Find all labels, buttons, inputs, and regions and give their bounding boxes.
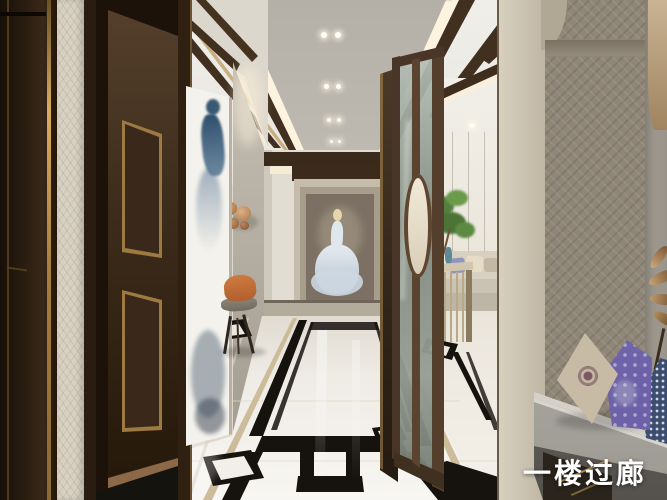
floor-band-to-bench xyxy=(0,0,667,500)
bonsai-foliage xyxy=(455,222,475,238)
pillow-purple-motif xyxy=(614,380,636,406)
screen-center-strip xyxy=(0,0,667,500)
oval-ring-window xyxy=(404,174,432,278)
spotlight xyxy=(337,118,341,122)
fascia-beam-b xyxy=(0,0,667,500)
caption-room-label: 一楼过廊 xyxy=(447,452,647,496)
painting-top-beam xyxy=(0,0,667,500)
wood-wall-gold-strip xyxy=(47,0,51,500)
copper-disc-sconce xyxy=(236,206,251,221)
fascia-cove-glow xyxy=(0,0,667,500)
screen-glass-streak xyxy=(399,120,411,300)
door-gold-inlay-top xyxy=(0,0,667,500)
pillow-beige-medallion xyxy=(578,366,598,386)
dark-wood-wall xyxy=(0,0,57,500)
niche-wall xyxy=(0,0,667,500)
accent-wall-right xyxy=(645,0,667,500)
spotlight xyxy=(321,32,327,38)
pillow-dotted-navy xyxy=(0,0,667,500)
living-wall-panel-seam xyxy=(484,132,485,276)
floor-seam xyxy=(0,0,667,500)
living-ceiling-beam xyxy=(0,0,667,500)
floor-band-front-right xyxy=(0,0,667,500)
ink-figure-flow xyxy=(196,168,222,252)
dried-flower-decor xyxy=(651,308,667,330)
floor-seam xyxy=(0,0,667,500)
fascia-beam-a xyxy=(0,0,667,500)
pillow-floral-beige xyxy=(0,0,667,500)
dark-wood-panel xyxy=(0,0,667,500)
chair-leg xyxy=(242,314,255,354)
dark-wood-panel-gold-edge xyxy=(0,0,667,500)
bench-front-face xyxy=(0,0,667,500)
floor-square-right xyxy=(0,0,667,500)
end-wall-cove-glow xyxy=(0,0,667,500)
floor-flanker-left xyxy=(0,0,667,500)
floor-runner-right xyxy=(0,0,667,500)
greek-key-wallpaper-strip xyxy=(57,0,84,500)
ceiling-beam-corner-right xyxy=(0,0,667,500)
door-gold-inlay-bottom xyxy=(0,0,667,500)
bench-back-rail xyxy=(0,0,667,500)
bench-cushion-highlight xyxy=(0,0,667,500)
end-wall-pilaster-right xyxy=(0,0,667,500)
dried-flower-decor xyxy=(650,293,667,306)
floor-runner-left xyxy=(0,0,667,500)
floor-meander-cross xyxy=(0,0,667,500)
ceiling-beam-right xyxy=(0,0,667,500)
marble-floor xyxy=(0,0,667,500)
living-wall-panel-seam xyxy=(452,132,453,272)
floor-runner-inner-right xyxy=(0,0,667,500)
bonsai-foliage xyxy=(428,196,454,216)
spotlight xyxy=(324,84,329,89)
ceiling-beam-outer-left xyxy=(0,0,667,500)
floor-pinstripe-left xyxy=(0,0,667,500)
dried-flower-decor xyxy=(647,267,667,289)
wood-wall-panel-groove xyxy=(0,12,46,16)
chair-backrest xyxy=(223,273,258,302)
spotlight xyxy=(327,118,331,122)
spotlight xyxy=(469,123,475,128)
spotlight xyxy=(336,84,341,89)
sofa-pillow-cream xyxy=(465,255,483,272)
bride-figure-glow xyxy=(318,206,362,262)
left-fascia xyxy=(0,0,667,500)
chair-shadow xyxy=(220,347,266,357)
floor-sheen xyxy=(140,438,220,490)
cove-light-right xyxy=(0,0,667,500)
floor-meander-left-leg xyxy=(0,0,667,500)
pillow-shadow xyxy=(556,412,660,430)
blue-vase xyxy=(445,247,452,264)
artwork-panel-edge xyxy=(0,0,667,500)
sofa-base xyxy=(444,293,502,311)
bride-figure-head xyxy=(333,209,342,221)
ceiling-tray xyxy=(0,0,667,500)
living-floor-inlay-2 xyxy=(0,0,667,500)
end-wall xyxy=(0,0,667,500)
entry-door xyxy=(0,0,667,500)
living-wall-panel-seam xyxy=(468,132,469,274)
ink-rocks-dark xyxy=(195,398,225,434)
wood-floor-sliver xyxy=(0,0,667,500)
copper-disc-sconce xyxy=(224,202,237,215)
cove-light-left xyxy=(0,0,667,500)
door-casing-left xyxy=(84,0,96,500)
console-table-legs xyxy=(438,272,470,342)
corridor-photo: 一楼过廊 xyxy=(0,0,667,500)
bench-cushion xyxy=(0,0,667,500)
painting-frame xyxy=(0,0,667,500)
dried-flower-decor xyxy=(647,243,667,270)
living-room-view xyxy=(0,0,667,500)
floor-meander-right-leg xyxy=(0,0,667,500)
floor-meander-bottom xyxy=(0,0,667,500)
door-threshold-granite xyxy=(0,0,667,500)
floor-seam xyxy=(0,0,667,500)
wood-wall-gold-corner xyxy=(7,267,27,272)
column-plain xyxy=(497,0,547,500)
pillow-floral-purple xyxy=(0,0,667,500)
floor-reflection xyxy=(352,340,360,480)
column-fret-wallpaper xyxy=(545,0,645,500)
console-side-panel xyxy=(466,270,472,342)
chair-seat xyxy=(221,296,258,312)
bride-figure-skirt xyxy=(315,244,359,294)
floor-inner-far-edge xyxy=(0,0,667,500)
end-wall-pilaster-left xyxy=(0,0,667,500)
screen-frame-left xyxy=(0,0,667,500)
screen-stile-right xyxy=(0,0,667,500)
bride-figure-skirt-base xyxy=(311,268,363,296)
bonsai-trunk xyxy=(441,228,451,260)
ceiling xyxy=(0,0,667,500)
floor-square-left xyxy=(0,0,667,500)
floor-flanker-right-inner xyxy=(0,0,667,500)
floor-runner-inner-left xyxy=(0,0,667,500)
end-wall-crown-beam xyxy=(0,0,667,500)
dried-flower-stem xyxy=(654,328,666,370)
door-casing-right xyxy=(178,0,192,500)
living-cove xyxy=(0,0,667,500)
screen-glass xyxy=(0,0,667,500)
chair-leg xyxy=(223,316,232,354)
bride-figure-torso xyxy=(330,221,343,251)
bonsai-foliage xyxy=(446,190,468,206)
ink-figure-head xyxy=(206,99,220,115)
copper-disc-sconce xyxy=(228,218,239,229)
floor-square-right-inner xyxy=(0,0,667,500)
spotlight xyxy=(335,32,341,38)
copper-disc-sconce xyxy=(240,221,249,230)
floor-flanker-right xyxy=(0,0,667,500)
arch-ledge xyxy=(545,40,645,56)
end-wall-baseboard-line xyxy=(0,0,667,500)
arch-niche xyxy=(541,0,567,50)
sconce-shadow xyxy=(228,214,258,230)
sofa-back xyxy=(446,251,502,281)
end-wall-baseboard xyxy=(0,0,667,500)
floor-flanker-left-inner xyxy=(0,0,667,500)
painting-frame-inner xyxy=(0,0,667,500)
screen-rail-top xyxy=(0,0,667,500)
ink-rocks xyxy=(191,330,225,418)
console-table-top xyxy=(433,262,473,273)
spotlight xyxy=(338,140,341,143)
side-cabinet xyxy=(0,0,667,500)
floor-pinstripe-right xyxy=(0,0,667,500)
curtain-decor-top-right xyxy=(648,0,667,130)
chair-leg xyxy=(236,318,239,354)
living-floor-inlay xyxy=(0,0,667,500)
screen-rail-bottom xyxy=(0,0,667,500)
niche-spot-glow xyxy=(233,66,263,146)
ceiling-beam-outer-right xyxy=(0,0,667,500)
ink-artwork-panel xyxy=(0,0,667,500)
door-inlay-top-panel xyxy=(0,0,667,500)
floor-square-left-inner xyxy=(0,0,667,500)
sofa-seat xyxy=(444,279,502,295)
floor-reflection xyxy=(315,330,328,480)
door-cavity xyxy=(84,0,192,500)
sofa-pillow-blue xyxy=(449,257,465,273)
ceiling-beam-left xyxy=(0,0,667,500)
sofa-pillow-taupe xyxy=(484,258,498,272)
floor-band-front-left xyxy=(0,0,667,500)
ceiling-gold-trim-left xyxy=(0,0,667,500)
spotlight xyxy=(330,140,333,143)
ink-figure-body xyxy=(199,113,226,177)
door-inlay-bottom-panel xyxy=(0,0,667,500)
wood-wall-gold-line xyxy=(7,0,9,500)
painting-canvas xyxy=(0,0,667,500)
bonsai-foliage xyxy=(436,212,466,234)
